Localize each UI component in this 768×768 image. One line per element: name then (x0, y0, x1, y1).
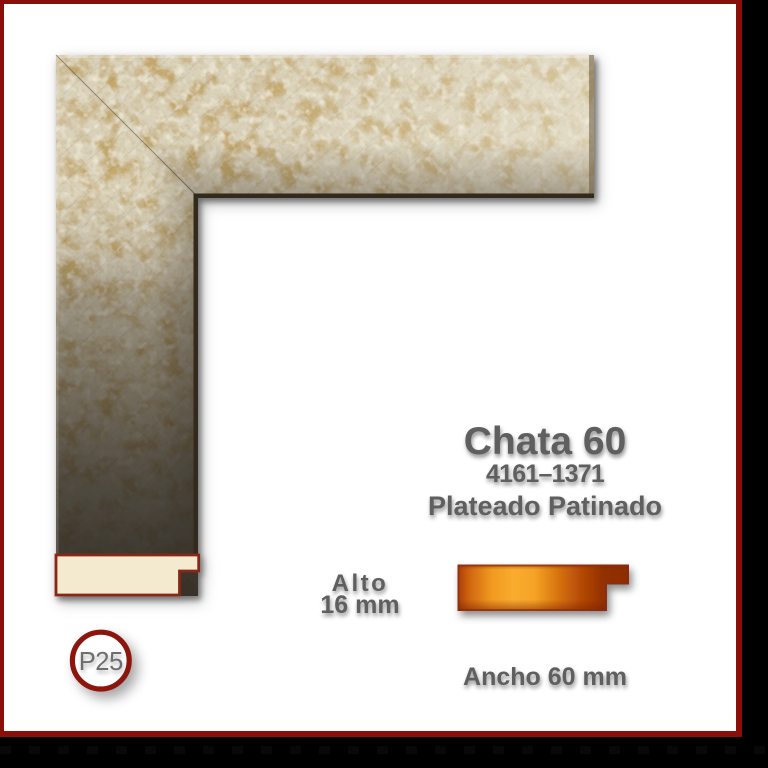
svg-text:P25: P25 (79, 648, 123, 676)
